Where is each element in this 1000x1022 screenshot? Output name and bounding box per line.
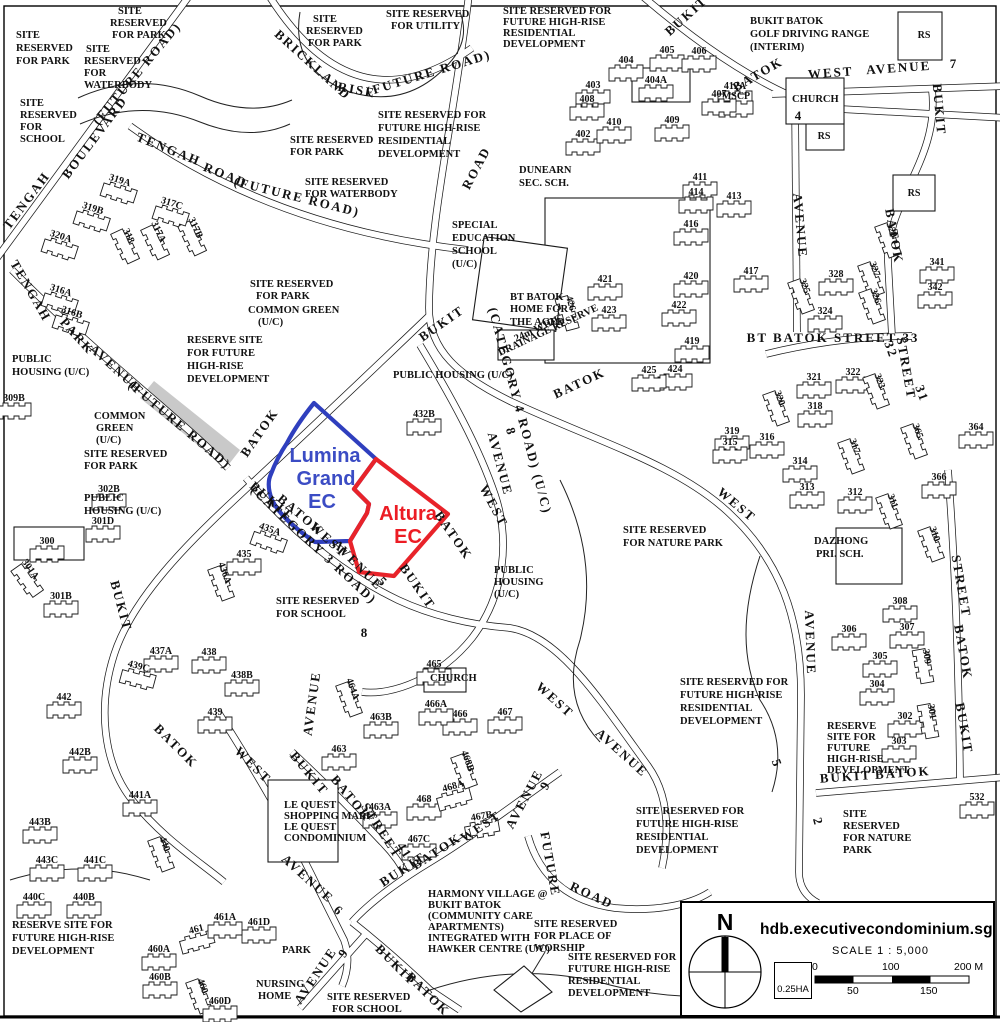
map-label: FUTURE HIGH-RISE (378, 123, 480, 134)
map-label: 460B (149, 972, 171, 983)
map-label: TENGAH (134, 129, 203, 169)
ec-site-label: Grand (297, 468, 356, 490)
map-label: PUBLIC HOUSING (U/C) (393, 370, 513, 381)
map-label: 303 (892, 736, 907, 747)
building-footprint (750, 442, 784, 458)
map-label: RESIDENTIAL (568, 976, 640, 987)
map-label: DEVELOPMENT (187, 374, 269, 385)
map-label: 366 (932, 472, 947, 483)
map-label: SITE (86, 44, 110, 55)
map-label: HAWKER CENTRE (U/C) (428, 944, 550, 955)
map-label: BUKIT (107, 579, 135, 633)
map-label: 461A (214, 912, 237, 923)
map-label: RESERVE SITE FOR (12, 920, 113, 931)
building-footprint (192, 657, 226, 673)
map-label: SITE RESERVED (84, 449, 168, 460)
building-footprint (208, 922, 242, 938)
map-label: 304 (870, 679, 885, 690)
map-label: 420 (684, 271, 699, 282)
map-label: 302 (898, 711, 913, 722)
map-label: SITE RESERVED (386, 9, 470, 20)
map-label: DEVELOPMENT (568, 988, 650, 999)
map-label: 31 (912, 383, 932, 404)
map-label: HOUSING (U/C) (12, 367, 90, 378)
scale-tick: 150 (920, 985, 938, 997)
map-label: 308 (893, 596, 908, 607)
map-label: 321 (807, 372, 822, 383)
map-label: RS (918, 30, 931, 41)
map-label: 312 (848, 487, 863, 498)
map-label: LE QUEST (284, 822, 336, 833)
map-label: 416 (684, 219, 699, 230)
map-label: 422 (672, 300, 687, 311)
map-label: 410 (607, 117, 622, 128)
map-label: (FUTURE ROAD) (365, 47, 493, 99)
map-label: 322 (846, 367, 861, 378)
map-label: HOUSING (494, 577, 544, 588)
map-label: 440B (73, 892, 95, 903)
map-label: 440C (23, 892, 45, 903)
map-label: SITE RESERVED FOR (680, 677, 789, 688)
map-label: BATOK (151, 721, 201, 771)
website-label: hdb.executivecondominium.sg (760, 921, 990, 939)
map-label: FOR PARK (308, 38, 363, 49)
map-label: 409 (665, 115, 680, 126)
map-label: FOR SCHOOL (276, 609, 346, 620)
map-label: SITE RESERVED (305, 177, 389, 188)
map-label: COMMON GREEN (248, 305, 340, 316)
building-footprint (798, 411, 832, 427)
map-label: COMMON (94, 411, 146, 422)
building-footprint (888, 721, 922, 737)
map-label: 438 (202, 647, 217, 658)
map-label: RESERVED (20, 110, 77, 121)
ec-site-label: EC (394, 526, 422, 548)
scale-tick: 0 (812, 961, 818, 973)
building-footprint (566, 139, 600, 155)
map-label: 315 (723, 437, 738, 448)
map-label: BATOK (403, 969, 453, 1019)
scale-tick: 200 M (954, 961, 983, 973)
building-footprint (227, 559, 261, 575)
map-label: (U/C) (258, 317, 284, 328)
building-footprint (30, 865, 64, 881)
map-label: RESERVE (827, 721, 876, 732)
map-label: 301D (92, 516, 114, 527)
map-label: 318 (808, 401, 823, 412)
map-label: 313 (800, 482, 815, 493)
map-label: ROAD (459, 144, 494, 192)
building-footprint (882, 746, 916, 762)
map-label: (U/C) (452, 259, 478, 270)
map-label: CHURCH (792, 94, 839, 105)
map-label: RESERVE SITE (187, 335, 263, 346)
map-label: DUNEARN (519, 165, 572, 176)
building-footprint (44, 601, 78, 617)
building-footprint (734, 276, 768, 292)
building-footprint (63, 757, 97, 773)
map-label: AVENUE (300, 670, 324, 737)
map-label: PARK (843, 845, 873, 856)
map-label: HIGH-RISE (187, 361, 244, 372)
map-label: 421 (598, 274, 613, 285)
map-label: SEC. SCH. (519, 178, 569, 189)
map-label: 305 (873, 651, 888, 662)
map-label: RS (818, 131, 831, 142)
building-footprint (838, 497, 872, 513)
map-label: BATOK (432, 508, 476, 562)
map-label: 403 (586, 80, 601, 91)
map-label: BUKIT (819, 767, 872, 786)
map-label: HOME (258, 991, 291, 1002)
map-label: 466 (453, 709, 468, 720)
map-label: FOR PARK (16, 56, 71, 67)
map-label: SITE RESERVED (327, 992, 411, 1003)
building-footprint (918, 292, 952, 308)
map-label: 405 (660, 45, 675, 56)
map-label: 8 (361, 625, 370, 640)
map-label: SITE RESERVED FOR (378, 110, 487, 121)
building-footprint (883, 606, 917, 622)
map-label: 404A (645, 75, 668, 86)
building-footprint (570, 104, 604, 120)
map-label: SITE RESERVED (250, 279, 334, 290)
ec-site-label: Altura (379, 503, 438, 525)
map-canvas: SITERESERVEDFOR PARKSITERESERVEDFOR PARK… (0, 0, 1000, 1022)
map-label: AVENUE (802, 610, 819, 676)
building-footprint (959, 432, 993, 448)
map-label: 463 (332, 744, 347, 755)
building-footprint (960, 802, 994, 818)
building-footprint (143, 982, 177, 998)
map-label: RESIDENTIAL (636, 832, 708, 843)
map-label: 467 (498, 707, 513, 718)
building-footprint (78, 865, 112, 881)
map-label: GOLF DRIVING RANGE (750, 29, 869, 40)
map-label: GREEN (96, 423, 134, 434)
map-label: FOR PLACE OF (534, 931, 612, 942)
map-label: 414 (689, 187, 704, 198)
building-footprint (832, 634, 866, 650)
scale-label: SCALE 1 : 5,000 (832, 945, 929, 957)
map-label: DEVELOPMENT (12, 946, 94, 957)
map-label: 443C (36, 855, 58, 866)
map-label: RESIDENTIAL (503, 28, 575, 39)
map-label: DEVELOPMENT (680, 716, 762, 727)
map-label: FOR (84, 68, 107, 79)
building-footprint (797, 382, 831, 398)
scale-tick: 50 (847, 985, 859, 997)
map-label: SITE (843, 809, 867, 820)
map-label: SITE RESERVED (290, 135, 374, 146)
map-label: 364 (969, 422, 984, 433)
map-label: (COMMUNITY CARE (428, 911, 533, 922)
building-footprint (142, 954, 176, 970)
map-label: 342 (928, 282, 943, 293)
map-label: FOR SCHOOL (332, 1004, 402, 1015)
map-label: BUKIT BATOK (750, 16, 824, 27)
scale-bar-segment (892, 976, 931, 983)
map-label: 302B (98, 484, 120, 495)
map-label: FOR PARK (256, 291, 311, 302)
map-label: 460A (148, 944, 171, 955)
building-footprint (655, 125, 689, 141)
building-footprint (920, 267, 954, 283)
map-label: FOR PARK (84, 461, 139, 472)
building-footprint (17, 902, 51, 918)
map-label: SPECIAL (452, 220, 498, 231)
building-footprint (407, 804, 441, 820)
building-footprint (890, 632, 924, 648)
map-label: 306 (842, 624, 857, 635)
map-label: RESIDENTIAL (680, 703, 752, 714)
site-map: SITERESERVEDFOR PARKSITERESERVEDFOR PARK… (0, 0, 1000, 1022)
building-footprint (863, 661, 897, 677)
map-label: 408 (580, 94, 595, 105)
map-label: 309B (3, 393, 25, 404)
building-footprint (23, 827, 57, 843)
map-label: SITE RESERVED FOR (568, 952, 677, 963)
map-label: 460D (209, 996, 231, 1007)
map-label: 466A (425, 699, 448, 710)
north-label: N (710, 909, 740, 936)
map-label: 324 (818, 306, 833, 317)
map-label: WEST (232, 743, 275, 786)
map-label: (INTERIM) (750, 42, 805, 53)
map-label: 2 (810, 816, 827, 828)
map-label: FOR NATURE PARK (623, 538, 724, 549)
map-label: SITE RESERVED (534, 919, 618, 930)
map-label: SITE RESERVED (623, 525, 707, 536)
map-label: DEVELOPMENT (378, 149, 460, 160)
map-label: FOR (20, 122, 43, 133)
area-box: 0.25HA (774, 962, 812, 999)
map-label: CHURCH (430, 673, 477, 684)
map-label: 465 (427, 659, 442, 670)
map-label: FUTURE HIGH-RISE (680, 690, 782, 701)
map-label: DEVELOPMENT (503, 39, 585, 50)
map-label: 7 (950, 56, 959, 71)
ec-site-label: Lumina (289, 445, 361, 467)
map-label: TENGAH (7, 257, 54, 324)
map-label: AVENUE (866, 58, 932, 78)
ec-site-label: EC (308, 491, 336, 513)
building-footprint (242, 927, 276, 943)
map-label: BUKIT BATOK (428, 900, 502, 911)
map-label: 423 (602, 305, 617, 316)
building-footprint (488, 717, 522, 733)
map-label: 419 (685, 336, 700, 347)
map-label: 435 (237, 549, 252, 560)
map-label: BOULEVARD (59, 93, 131, 181)
map-label: 328 (829, 269, 844, 280)
legend-box: N hdb.executivecondominium.sg SCALE 1 : … (680, 901, 995, 1017)
scale-bar-segment (815, 976, 854, 983)
map-label: 402 (576, 129, 591, 140)
building-footprint (86, 526, 120, 542)
map-labels: SITERESERVEDFOR PARKSITERESERVEDFOR PARK… (0, 0, 985, 1019)
building-footprint (860, 689, 894, 705)
building-footprint (364, 722, 398, 738)
map-label: (U/C) (96, 435, 122, 446)
place-of-worship-site (494, 966, 552, 1012)
map-label: FUTURE HIGH-RISE (636, 819, 738, 830)
building-footprint (682, 56, 716, 72)
map-label: INTEGRATED WITH (428, 933, 530, 944)
map-label: FOR UTILITY (391, 21, 461, 32)
map-label: HIGH-RISE (827, 754, 884, 765)
map-label: AVENUE (502, 767, 546, 832)
map-label: SITE (313, 14, 337, 25)
map-label: FOR NATURE (843, 833, 911, 844)
map-label: SITE FOR (827, 732, 876, 743)
map-label: RESERVED (306, 26, 363, 37)
map-label: BATOK (874, 763, 931, 782)
map-label: 341 (930, 257, 945, 268)
map-label: 413 (727, 191, 742, 202)
map-label: 301B (50, 591, 72, 602)
map-label: FOR FUTURE (187, 348, 255, 359)
map-label: WEST (807, 63, 854, 81)
map-label: SITE (16, 30, 40, 41)
building-footprint (597, 127, 631, 143)
map-label: DEVELOPMENT (636, 845, 718, 856)
map-label: 463B (370, 712, 392, 723)
map-label: RESERVED (843, 821, 900, 832)
map-label: 461D (248, 917, 270, 928)
scale-tick: 100 (882, 961, 900, 973)
map-label: RESERVED (16, 43, 73, 54)
building-footprint (67, 902, 101, 918)
building-footprint (225, 680, 259, 696)
map-label: 442B (69, 747, 91, 758)
map-label: SITE (20, 98, 44, 109)
map-label: PRI. SCH. (816, 549, 864, 560)
map-label: HARMONY VILLAGE @ (428, 889, 548, 900)
map-label: CONDOMINIUM (284, 833, 366, 844)
map-label: DAZHONG (814, 536, 868, 547)
map-label: 411 (693, 172, 707, 183)
map-label: BT BATOK (510, 292, 564, 303)
map-label: SCHOOL (20, 134, 65, 145)
map-label: BATOK (551, 364, 608, 401)
map-label: PUBLIC (494, 565, 534, 576)
building-footprint (819, 279, 853, 295)
map-label: FUTURE HIGH-RISE (503, 17, 605, 28)
map-label: 406 (692, 46, 707, 57)
building-footprint (123, 800, 157, 816)
map-label: 432B (413, 409, 435, 420)
map-label: 443B (29, 817, 51, 828)
map-label: FUTURE (827, 743, 870, 754)
building-footprint (322, 754, 356, 770)
map-label: RESIDENTIAL (378, 136, 450, 147)
map-label: 425 (642, 365, 657, 376)
map-label: FUTURE HIGH-RISE (568, 964, 670, 975)
map-label: 307 (900, 622, 915, 633)
map-label: SCHOOL (452, 246, 497, 257)
building-footprint (47, 702, 81, 718)
map-label: 442 (57, 692, 72, 703)
map-label: FUTURE HIGH-RISE (12, 933, 114, 944)
building-footprint (407, 419, 441, 435)
map-label: 417 (744, 266, 759, 277)
map-label: SITE RESERVED FOR (636, 806, 745, 817)
map-label: PUBLIC (12, 354, 52, 365)
map-label: 316 (760, 432, 775, 443)
map-label: 468 (417, 794, 432, 805)
map-label: 461 (188, 922, 205, 937)
map-label: 319 (725, 426, 740, 437)
map-label: FOR PARK (290, 147, 345, 158)
map-label: PARK (282, 945, 312, 956)
map-label: 467C (408, 834, 430, 845)
map-label: HOME FOR (510, 304, 568, 315)
map-label: LE QUEST (284, 800, 336, 811)
map-label: 437A (150, 646, 173, 657)
map-label: 300 (40, 536, 55, 547)
map-label: EDUCATION (452, 233, 516, 244)
map-label: 407 (712, 89, 727, 100)
map-label: 441C (84, 855, 106, 866)
building-footprint (783, 466, 817, 482)
map-label: 441A (129, 790, 152, 801)
map-label: 532 (970, 792, 985, 803)
map-label: APARTMENTS) (428, 922, 504, 933)
map-label: 314 (793, 456, 808, 467)
map-label: 4 (795, 108, 804, 123)
map-label: RS (908, 188, 921, 199)
map-label: RESERVED (110, 18, 167, 29)
building-footprint (790, 492, 824, 508)
map-label: 424 (668, 364, 683, 375)
map-label: SITE RESERVED (276, 596, 360, 607)
map-label: WEST (533, 679, 577, 721)
map-label: 439 (208, 707, 223, 718)
map-label: 404 (619, 55, 634, 66)
building-footprint (717, 201, 751, 217)
map-label: BATOK (237, 405, 281, 459)
map-label: SITE RESERVED FOR (503, 6, 612, 17)
map-label: 438B (231, 670, 253, 681)
compass-needle (722, 937, 729, 972)
map-label: SITE (118, 6, 142, 17)
map-label: (U/C) (494, 589, 520, 600)
